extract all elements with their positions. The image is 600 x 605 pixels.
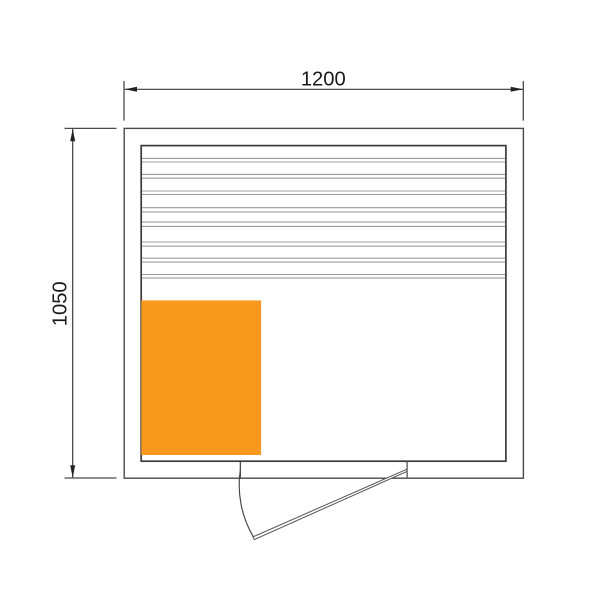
svg-text:1050: 1050: [50, 281, 72, 326]
svg-text:1200: 1200: [301, 69, 346, 91]
